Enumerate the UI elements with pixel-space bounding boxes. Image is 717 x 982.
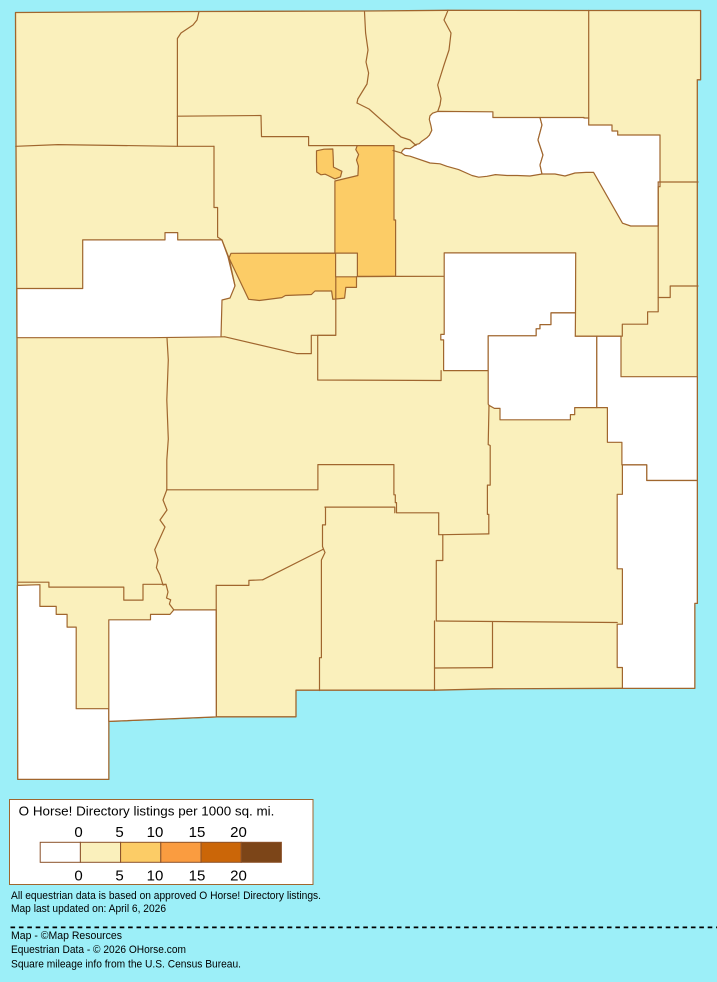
svg-text:Square mileage info from the U: Square mileage info from the U.S. Census… xyxy=(11,959,241,971)
svg-text:15: 15 xyxy=(189,868,206,885)
svg-text:0: 0 xyxy=(74,868,82,885)
svg-text:20: 20 xyxy=(230,868,247,885)
svg-text:10: 10 xyxy=(147,824,164,841)
svg-text:O Horse! Directory listings pe: O Horse! Directory listings per 1000 sq.… xyxy=(19,804,275,818)
svg-text:20: 20 xyxy=(230,824,247,841)
svg-text:Map last updated on: April 6,: Map last updated on: April 6, 2026 xyxy=(11,903,166,915)
svg-text:10: 10 xyxy=(147,868,164,885)
svg-text:Equestrian Data - © 2026 OHors: Equestrian Data - © 2026 OHorse.com xyxy=(11,944,186,956)
svg-text:5: 5 xyxy=(115,868,123,885)
svg-text:0: 0 xyxy=(74,824,82,841)
svg-text:15: 15 xyxy=(189,824,206,841)
svg-text:5: 5 xyxy=(115,824,123,841)
svg-text:Map - ©Map Resources: Map - ©Map Resources xyxy=(11,930,122,942)
svg-text:All equestrian data is based o: All equestrian data is based on approved… xyxy=(11,890,321,902)
